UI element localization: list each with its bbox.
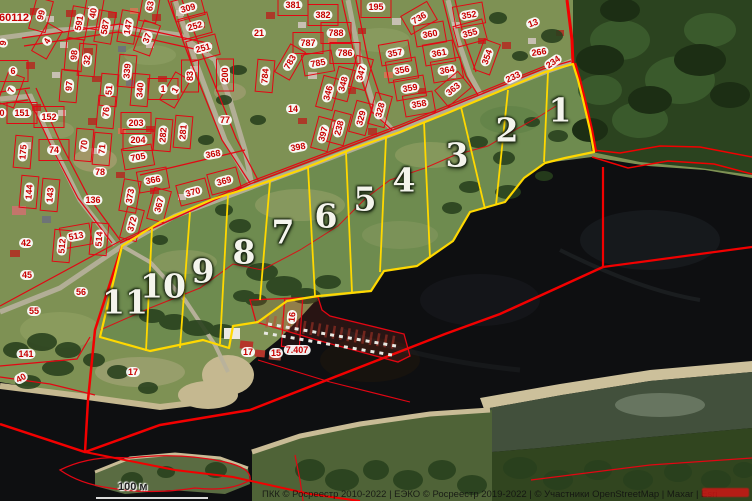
cadastral-label: 200 <box>220 65 230 84</box>
attribution: ПКК © Росреестр 2010-2022 | ЕЭКО © Росре… <box>262 489 750 500</box>
cadastral-label: 15 <box>269 348 283 358</box>
cadastral-label: 195 <box>366 2 385 12</box>
highlighted-parcel-number[interactable]: 4 <box>393 161 416 200</box>
cadastral-label: 51 <box>103 83 114 98</box>
highlighted-parcel-number[interactable]: 9 <box>192 252 215 291</box>
cadastral-label: 152 <box>39 112 58 122</box>
red-watermark <box>702 488 749 497</box>
highlighted-parcel-number[interactable]: 6 <box>315 197 338 236</box>
scale-label: 100 м <box>118 481 148 493</box>
cadastral-label: 340 <box>134 80 146 100</box>
highlighted-parcel-number[interactable]: 3 <box>446 136 469 175</box>
cadastral-label: 381 <box>283 0 302 10</box>
cadastral-label: 32 <box>81 53 92 68</box>
cadastral-label: 788 <box>326 28 345 38</box>
cadastral-label: 786 <box>335 48 354 58</box>
cadastral-label: 56 <box>74 287 88 297</box>
cadastral-label: 77 <box>218 115 232 125</box>
highlighted-parcel-number[interactable]: 5 <box>354 180 377 219</box>
cadastral-label: 78 <box>93 167 107 177</box>
map-canvas[interactable]: 6011299959140587147633730925225149832679… <box>0 0 752 501</box>
highlighted-parcel-number[interactable]: 1 <box>549 91 572 130</box>
cadastral-label: 17 <box>241 347 255 357</box>
highlighted-parcel-number[interactable]: 11 <box>102 283 148 322</box>
cadastral-label: 204 <box>128 135 147 145</box>
highlighted-parcel-number[interactable]: 7 <box>272 213 295 252</box>
cadastral-label: 76 <box>100 105 111 120</box>
cadastral-label: 136 <box>83 195 102 205</box>
cadastral-label: 784 <box>259 66 271 86</box>
cadastral-label: 60112 <box>0 13 31 23</box>
cadastral-label: 141 <box>16 349 35 359</box>
cadastral-label: 512 <box>56 236 68 256</box>
cadastral-label: 6 <box>8 66 17 76</box>
cadastral-label: 74 <box>47 145 61 155</box>
cadastral-label: 21 <box>252 28 266 38</box>
cadastral-label: 16 <box>286 310 297 325</box>
cadastral-label: 71 <box>96 142 107 157</box>
highlighted-parcel-number[interactable]: 8 <box>233 233 256 272</box>
scale-bar <box>96 497 208 499</box>
cadastral-label: 281 <box>177 122 189 142</box>
cadastral-label: 7.407 <box>284 345 311 355</box>
cadastral-label: 203 <box>126 118 145 128</box>
cadastral-label: 1 <box>158 84 167 94</box>
cadastral-label: 55 <box>27 306 41 316</box>
cadastral-label: 339 <box>121 61 133 81</box>
channel-shallows <box>615 393 705 417</box>
cadastral-label: 83 <box>185 69 195 83</box>
cadastral-label: 144 <box>23 182 35 202</box>
cadastral-label: 70 <box>78 138 89 153</box>
cadastral-label: 151 <box>12 108 31 118</box>
cadastral-label: 382 <box>313 10 332 20</box>
satellite-layer <box>0 0 752 501</box>
cadastral-label: 787 <box>298 38 317 48</box>
cadastral-label: 14 <box>286 104 300 114</box>
cadastral-label: 175 <box>17 142 29 162</box>
cadastral-label: 17 <box>126 367 140 377</box>
cadastral-label: 282 <box>157 125 169 145</box>
cadastral-label: 98 <box>68 48 79 63</box>
cadastral-label: 42 <box>19 238 33 248</box>
highlighted-parcel-number[interactable]: 2 <box>496 111 519 150</box>
cadastral-label: 514 <box>93 229 105 249</box>
cadastral-label: 45 <box>20 270 34 280</box>
cadastral-label: 97 <box>63 79 74 94</box>
cadastral-label: 143 <box>44 185 56 205</box>
